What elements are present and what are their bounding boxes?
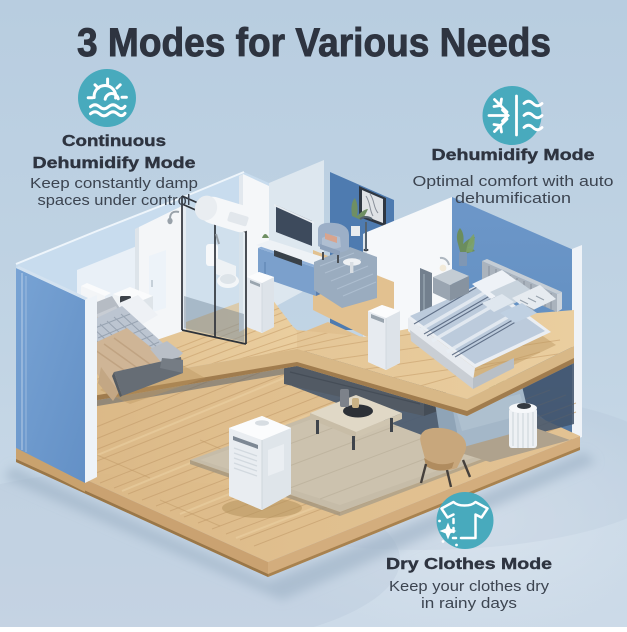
svg-text:spaces under control: spaces under control (38, 192, 191, 209)
svg-text:Dehumidify Mode: Dehumidify Mode (432, 147, 595, 164)
svg-text:Dehumidify Mode: Dehumidify Mode (33, 155, 196, 172)
svg-text:in rainy days: in rainy days (421, 595, 517, 612)
svg-text:Dry Clothes Mode: Dry Clothes Mode (386, 556, 552, 573)
svg-text:3 Modes for Various Needs: 3 Modes for Various Needs (77, 21, 551, 65)
svg-text:Optimal comfort with auto: Optimal comfort with auto (413, 173, 614, 190)
svg-text:Keep constantly damp: Keep constantly damp (30, 175, 198, 192)
svg-text:Continuous: Continuous (62, 133, 166, 150)
svg-text:Keep your clothes dry: Keep your clothes dry (389, 578, 550, 595)
svg-text:dehumification: dehumification (455, 190, 571, 207)
